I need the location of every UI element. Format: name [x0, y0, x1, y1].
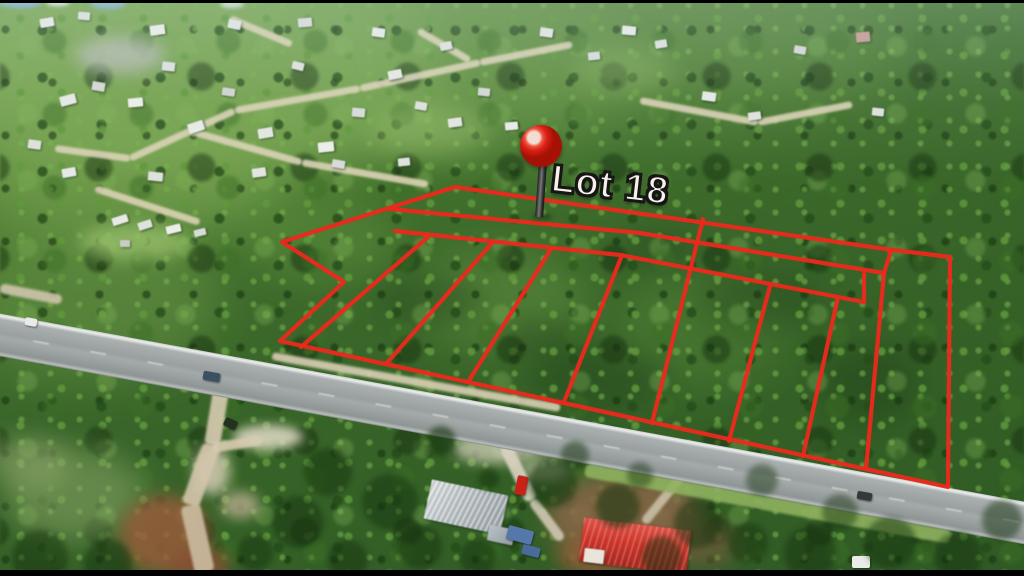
pin-stem — [535, 163, 547, 217]
house-rooftop — [318, 141, 335, 153]
tree-canopy — [728, 523, 768, 563]
tree-canopy — [478, 468, 500, 490]
house-rooftop — [447, 117, 462, 128]
tree-canopy — [398, 525, 442, 569]
interior-lot-line — [884, 251, 891, 273]
house-rooftop — [398, 157, 411, 166]
lot-label: Lot 18 — [549, 158, 671, 214]
terrain-patch — [820, 345, 920, 425]
terrain-patch — [220, 491, 260, 519]
tree-canopy — [784, 527, 836, 576]
house-rooftop — [148, 171, 164, 182]
house-rooftop — [505, 121, 519, 130]
terrain-patch — [240, 200, 400, 280]
house-rooftop — [78, 11, 91, 20]
terrain-patch — [380, 275, 480, 325]
house-rooftop — [622, 25, 637, 35]
house-rooftop — [298, 17, 313, 27]
house-rooftop — [251, 167, 266, 178]
tree-canopy — [304, 448, 352, 496]
tree-canopy — [822, 494, 858, 530]
house-rooftop — [27, 139, 41, 150]
pin-shadow — [532, 213, 552, 220]
terrain-patch — [620, 230, 700, 270]
terrain-patch — [500, 318, 580, 362]
house-rooftop — [352, 107, 366, 117]
terrain-patch — [75, 37, 165, 73]
tree-canopy — [362, 474, 418, 530]
house-rooftop — [222, 87, 236, 97]
tree-canopy — [746, 464, 778, 496]
house-rooftop — [701, 91, 716, 102]
tree-canopy — [426, 426, 456, 456]
tree-canopy — [982, 500, 1022, 540]
terrain-patch — [370, 105, 490, 155]
house-rooftop — [478, 87, 491, 96]
house-rooftop — [588, 51, 601, 60]
terrain-patch — [700, 270, 820, 330]
tree-canopy — [864, 517, 916, 569]
building-end-wall — [583, 548, 605, 564]
vehicle — [852, 556, 870, 568]
letterbox-bar-bottom — [0, 570, 1024, 576]
tree-canopy — [627, 462, 653, 488]
vehicle — [223, 417, 239, 431]
house-rooftop — [856, 31, 871, 42]
tree-canopy — [674, 500, 722, 548]
house-rooftop — [120, 240, 130, 247]
house-rooftop — [149, 24, 165, 36]
house-rooftop — [539, 27, 553, 38]
house-rooftop — [162, 61, 176, 71]
tree-canopy — [561, 441, 589, 469]
house-rooftop — [128, 97, 144, 107]
tree-canopy — [237, 535, 273, 571]
tree-canopy — [596, 484, 640, 528]
letterbox-bar-top — [0, 0, 1024, 3]
vehicle — [521, 544, 541, 558]
house-rooftop — [872, 107, 885, 116]
house-rooftop — [371, 27, 385, 38]
tree-canopy — [272, 496, 324, 548]
aerial-photo: Lot 18 — [0, 0, 1024, 576]
